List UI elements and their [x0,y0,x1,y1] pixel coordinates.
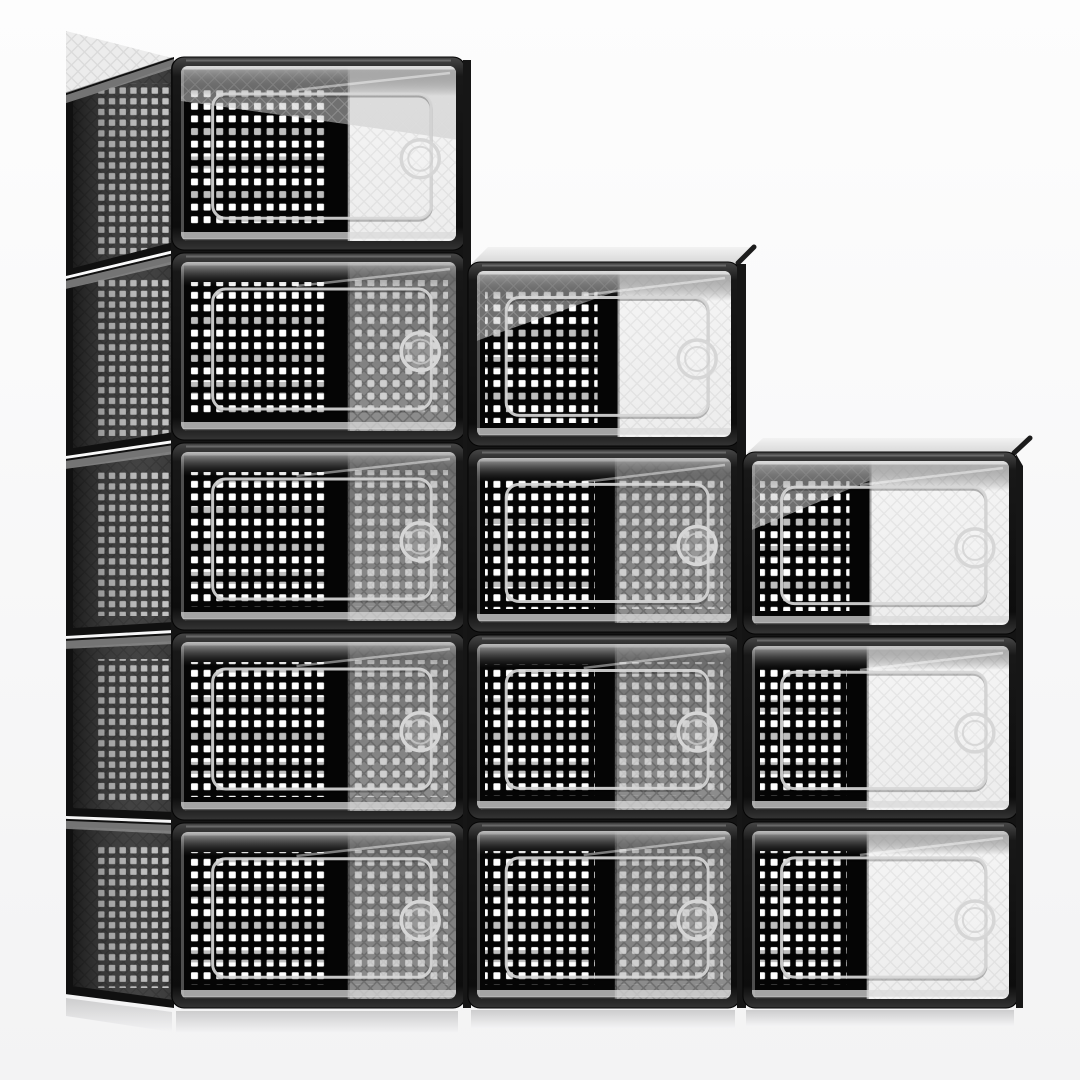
door-edge-line [348,262,350,431]
mesh-row-shadow [760,918,847,930]
box-column-middle [467,247,754,1008]
bottom-lip [752,616,1009,623]
side-panel-section [66,443,174,636]
left-lip-glare [181,452,184,621]
left-lip-glare [477,831,480,999]
shoe-box [468,635,740,819]
mesh-row-shadow [485,762,595,774]
mesh-row-shadow [760,700,847,712]
mesh-row-shadow [189,730,328,742]
top-lip-glare [181,452,456,456]
door-edge-line [615,644,617,810]
shoe-box [172,57,465,250]
shoe-box [468,449,740,632]
side-panel [66,31,174,1008]
left-lip-glare [477,644,480,810]
frame-top-highlight [186,60,451,62]
bottom-lip-glare [181,239,456,241]
mesh-row-shadow [760,886,847,898]
top-lip-glare [752,831,1009,835]
mesh-row-shadow [189,123,328,135]
mesh-row-shadow [189,950,328,962]
mesh-row-shadow [760,762,847,774]
mesh-row-shadow [760,731,847,743]
top-lid-sliver [472,247,754,263]
shoe-box [743,822,1018,1008]
mesh-row-shadow [189,697,328,709]
mesh-row-shadow [189,919,328,931]
bottom-lip [181,232,456,239]
frame-top-highlight [186,826,451,828]
bottom-lip-glare [181,809,456,811]
shoe-box [468,822,740,1008]
shoe-box [172,823,465,1008]
shoe-box [172,633,465,820]
door-edge-line [615,458,617,623]
mesh-row-shadow [760,577,850,589]
door-edge-line [615,831,617,999]
frame-top-highlight [186,446,451,448]
mesh-row-shadow [485,730,595,742]
mesh-row-shadow [485,698,595,710]
door-handle-hole [956,529,994,567]
top-lid-sliver [747,438,1030,453]
side-shading [73,641,174,812]
frame-top-highlight [757,455,1004,457]
column-floor-reflection [176,1011,458,1033]
door-handle-hole [956,714,994,752]
mesh-row-shadow [760,950,847,962]
bottom-lip-glare [477,435,731,437]
left-lip-glare [752,461,755,625]
top-lip-glare [181,262,456,266]
product-photo-shoe-box-stack [0,0,1080,1080]
bottom-lip-glare [477,808,731,810]
interior-content [752,461,1009,625]
bottom-lip [181,990,456,997]
mesh-row-shadow [485,886,595,898]
left-lip-glare [752,831,755,999]
top-lip-glare [181,642,456,646]
top-lip-glare [181,66,456,70]
frame-top-highlight [186,636,451,638]
frame-top-highlight [757,825,1004,827]
door-handle-hole [401,333,439,371]
door-handle-hole [401,523,439,561]
bottom-lip [477,990,731,997]
door-edge-line [348,642,350,811]
side-panel-section [66,57,174,276]
mesh-row-shadow [189,317,328,329]
side-panel-section [66,253,174,456]
left-lip-glare [477,271,480,437]
bottom-lip [752,990,1009,997]
bottom-lip-glare [477,997,731,999]
bottom-lip-glare [477,621,731,623]
bottom-lip [477,428,731,435]
mesh-row-shadow [485,575,595,587]
shoe-box [743,452,1018,634]
bottom-lip-glare [181,619,456,621]
interior-content [752,831,1009,999]
mesh-row-shadow [189,190,328,202]
shoe-box-stack-illustration [0,0,1080,1080]
mesh-row-shadow [485,389,598,401]
left-lip-glare [181,66,184,241]
mesh-row-shadow [189,540,328,552]
door-edge-line [348,832,350,999]
bottom-lip [477,614,731,621]
frame-top-highlight [186,256,451,258]
mesh-row-shadow [485,918,595,930]
top-gloss-band [181,66,456,96]
side-shading [73,451,174,628]
mesh-row-shadow [189,350,328,362]
side-panel-section [66,819,174,1008]
interior-content [181,642,456,811]
side-shading [73,261,174,448]
right-side-sliver [1016,454,1023,1008]
bottom-lip-glare [752,623,1009,625]
top-lip-glare [477,831,731,835]
bottom-lip-glare [181,429,456,431]
door-handle-hole [401,140,439,178]
frame-top-highlight [482,452,726,454]
box-column-right [742,438,1030,1008]
mesh-row-shadow [189,572,328,584]
top-lip-glare [752,461,1009,465]
column-floor-reflection [471,1010,735,1028]
door-handle-hole [678,340,716,378]
top-lip-glare [752,646,1009,650]
left-lip-glare [181,832,184,999]
side-shading [73,827,174,1000]
mesh-row-shadow [485,357,598,369]
shoe-box [172,253,465,440]
side-panel-section [66,633,174,820]
mesh-row-shadow [485,512,595,524]
mesh-row-shadow [760,546,850,558]
top-lip-glare [477,458,731,462]
frame-top-highlight [482,265,726,267]
shoe-box [468,262,740,446]
shoe-box [743,637,1018,819]
door-handle-hole [678,526,716,564]
mesh-row-shadow [189,762,328,774]
door-edge-line [867,646,869,810]
door-handle-hole [401,902,439,940]
interior-content [181,262,456,431]
frame-top-highlight [482,638,726,640]
interior-content [752,646,1009,810]
bottom-lip [181,612,456,619]
interior-content [181,452,456,621]
frame-top-highlight [482,825,726,827]
frame-top-highlight [757,640,1004,642]
bottom-lip [181,802,456,809]
door-handle-hole [401,713,439,751]
bottom-lip [477,801,731,808]
left-lip-glare [181,262,184,431]
interior-content [181,832,456,999]
mesh-row-shadow [189,157,328,169]
mesh-row-shadow [189,507,328,519]
left-lip-glare [752,646,755,810]
door-edge-line [867,831,869,999]
mesh-row-shadow [189,382,328,394]
mesh-row-shadow [189,887,328,899]
door-handle-hole [678,713,716,751]
top-lip-glare [181,832,456,836]
column-floor-reflection [746,1010,1014,1026]
bottom-lip-glare [752,997,1009,999]
door-edge-line [348,452,350,621]
bottom-lip [181,422,456,429]
bottom-lip-glare [181,997,456,999]
left-lip-glare [477,458,480,623]
door-handle-hole [678,901,716,939]
shoe-box [172,443,465,630]
mesh-row-shadow [485,950,595,962]
interior-content [181,66,456,241]
left-lip-glare [181,642,184,811]
box-column-left [66,31,471,1008]
mesh-row-shadow [485,544,595,556]
top-lip-glare [477,271,731,275]
bottom-lip-glare [752,808,1009,810]
door-handle-hole [956,901,994,939]
bottom-lip [752,801,1009,808]
top-lip-glare [477,644,731,648]
